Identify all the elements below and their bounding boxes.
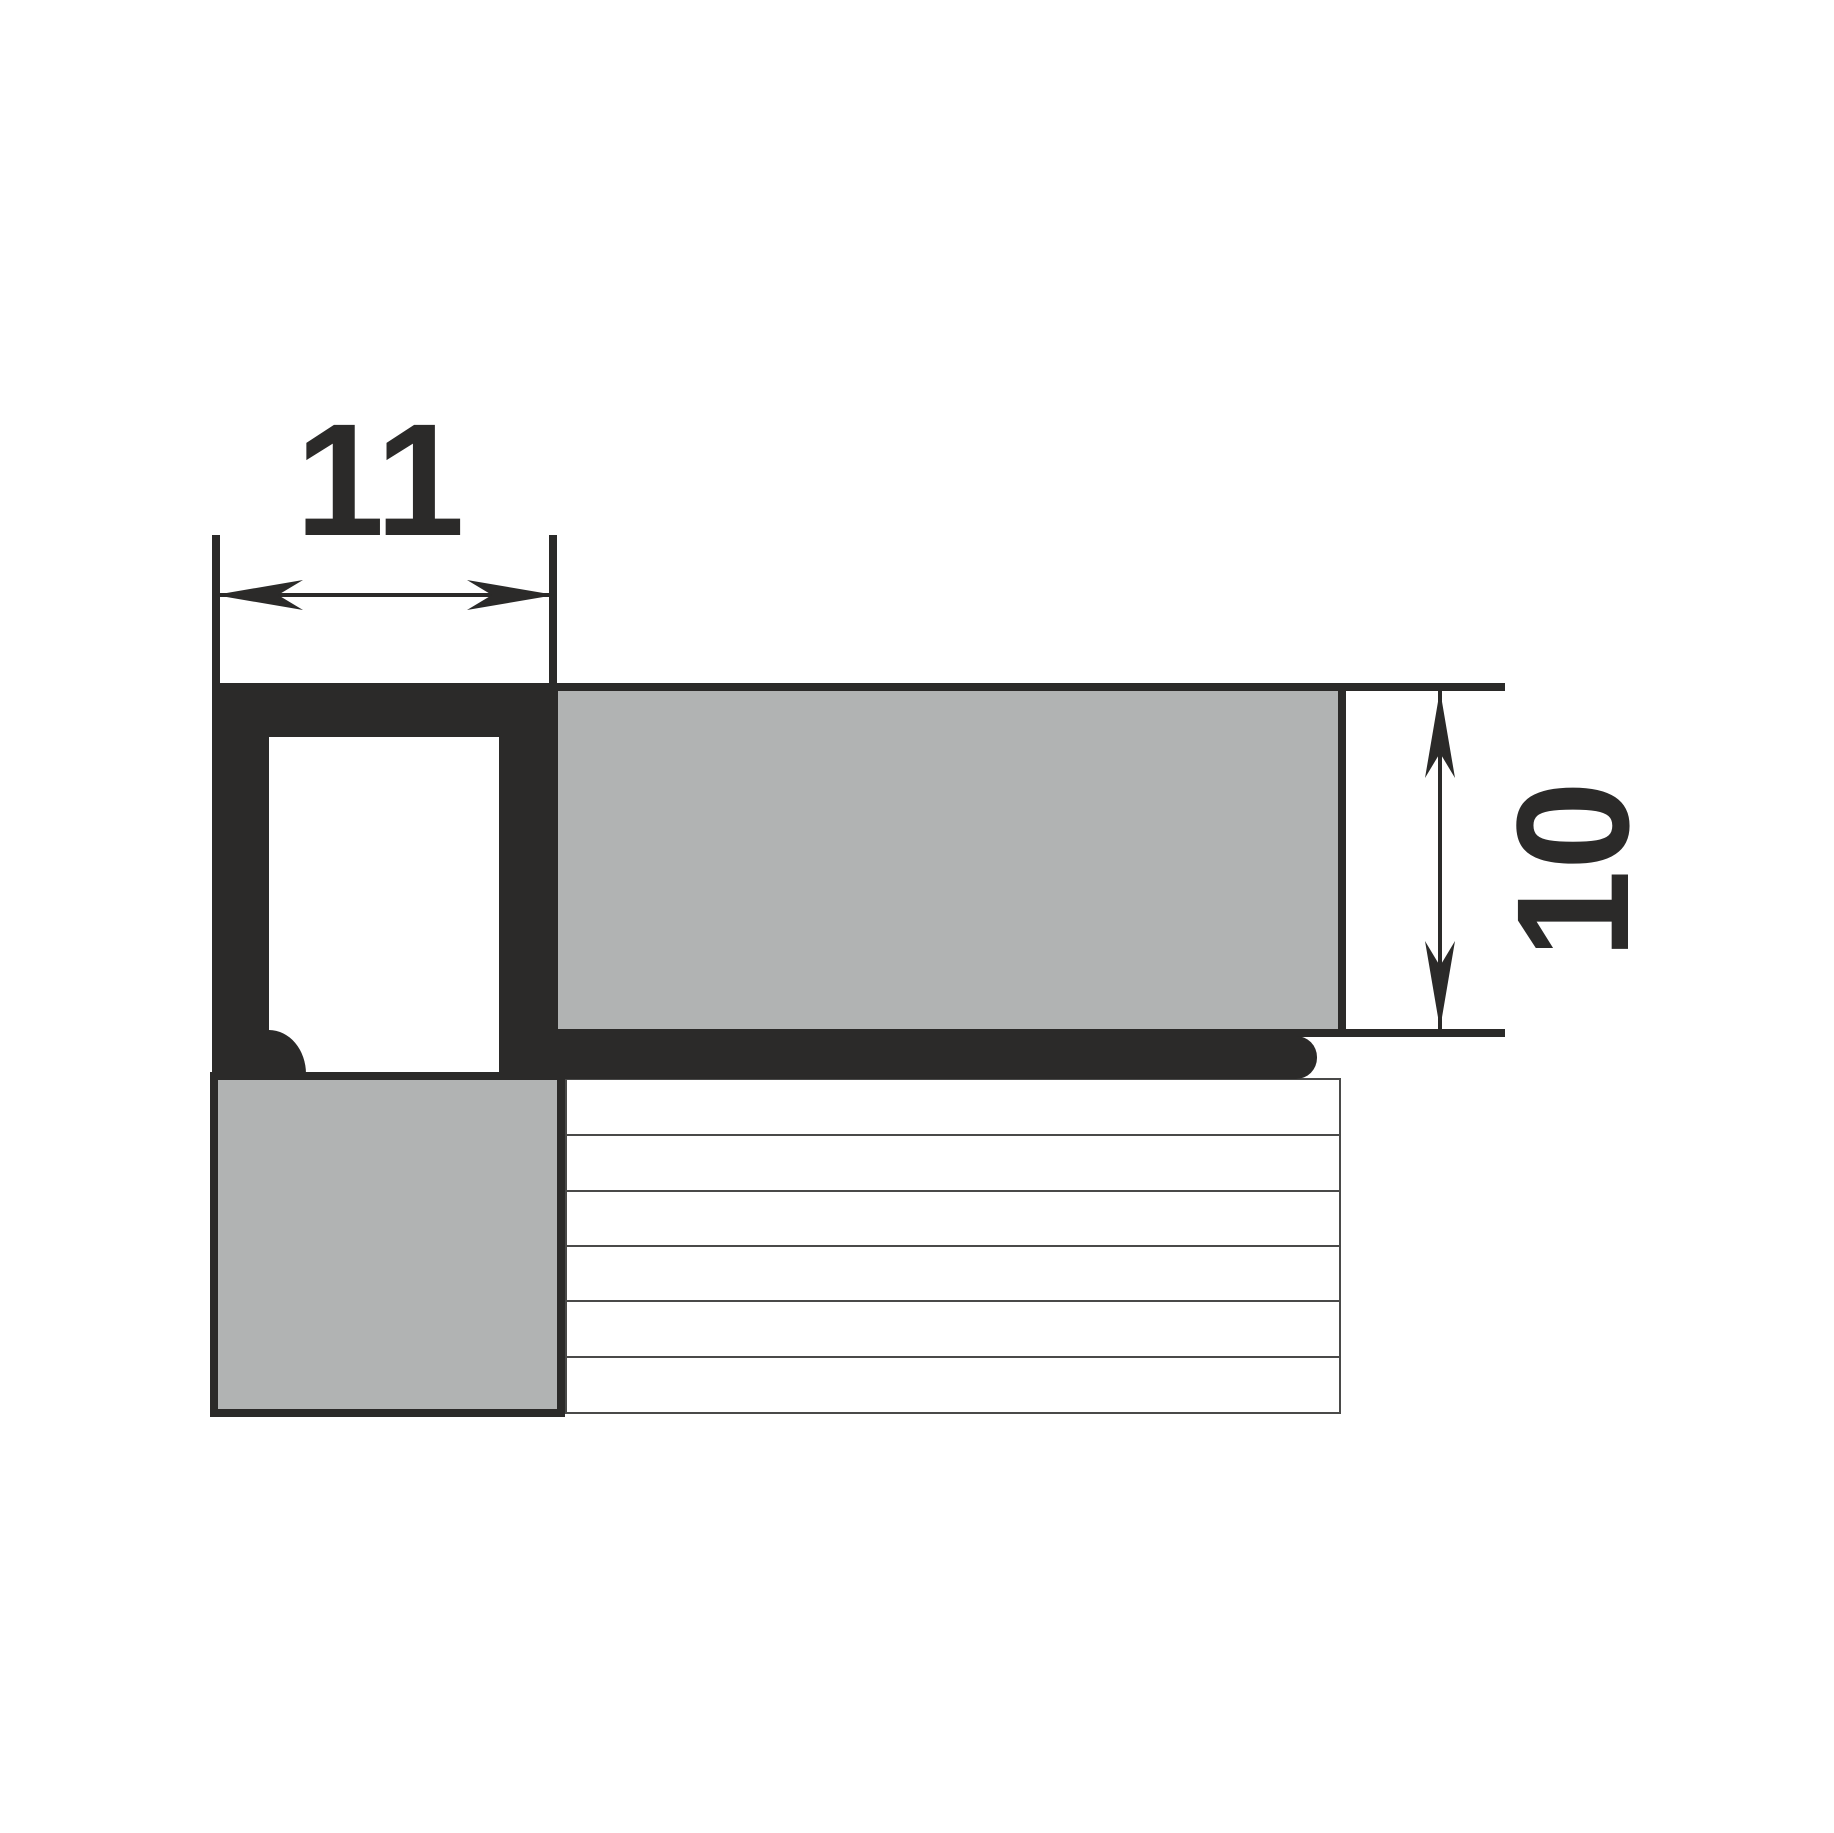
width-dim-label: 11 [295,400,464,560]
profile-left-wall [212,683,269,1078]
tile-small [210,1072,565,1417]
hatch-line [567,1190,1339,1192]
profile-right-wall [499,683,558,1078]
width-dim-arrowhead-right-icon [467,580,555,610]
width-dim-extension-line-right [549,535,557,691]
tile-top-border-and-extension-line [558,683,1505,691]
hatch-line [567,1300,1339,1302]
height-dim-arrowhead-top-icon [1425,690,1455,778]
hatch-line [567,1245,1339,1247]
height-dim-label: 10 [1493,781,1653,959]
profile-flange [499,1036,1317,1079]
height-dim-arrowhead-bottom-icon [1425,941,1455,1029]
technical-drawing-canvas: 11 10 [0,0,1834,1833]
profile-inner-fillet [269,1030,306,1074]
hatch-line [567,1134,1339,1136]
substrate-hatch-area [565,1078,1341,1414]
width-dim-extension-line-left [212,535,220,685]
width-dim-arrowhead-left-icon [215,580,303,610]
hatch-line [567,1356,1339,1358]
tile-large [558,691,1338,1029]
tile-right-border [1338,683,1346,1037]
